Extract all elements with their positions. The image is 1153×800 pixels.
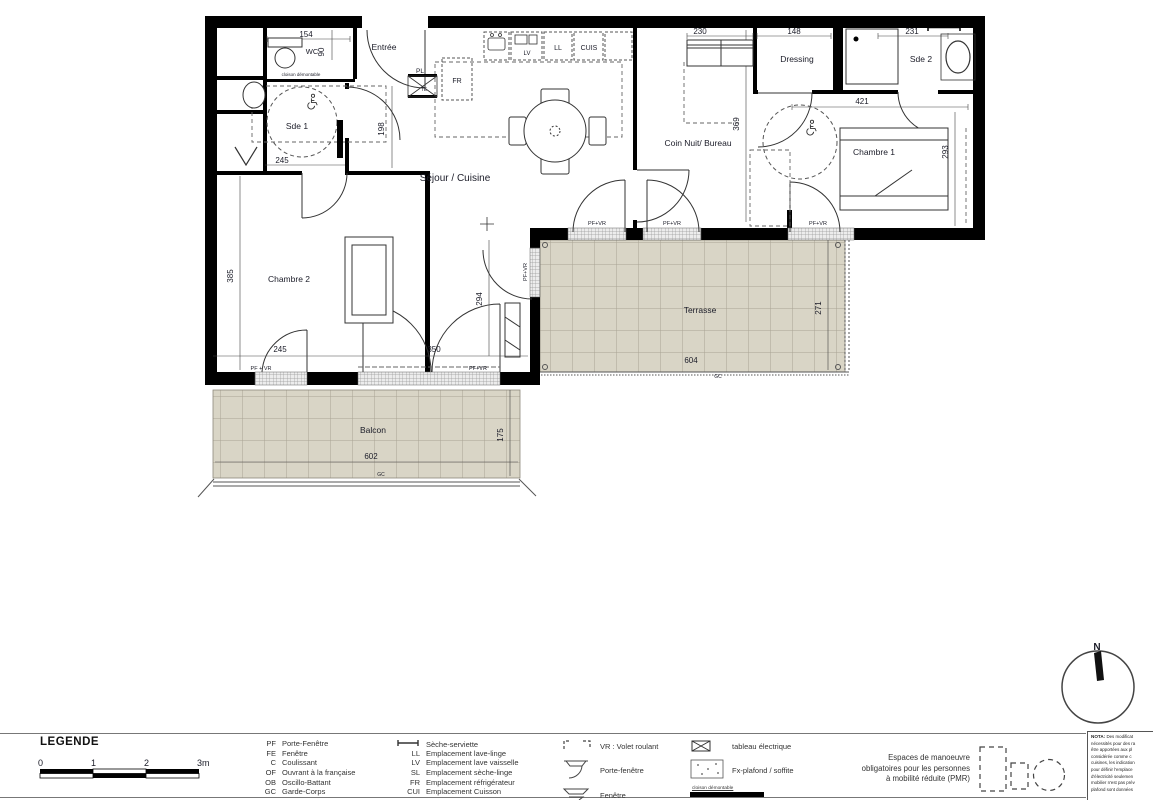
pmr-note-line: à mobilité réduite (PMR)	[832, 774, 970, 785]
dim-231: 231	[905, 27, 919, 36]
room-label-entree: Entrée	[371, 42, 396, 52]
legend-label: Fx-plafond / soffite	[732, 766, 794, 775]
nota-line: d'électricité seulemen	[1091, 774, 1153, 781]
radiator-sejour	[505, 303, 520, 357]
cloison-bar-icon	[690, 792, 764, 797]
room-label-sejour: Séjour / Cuisine	[420, 173, 491, 184]
towel-radiator-sde1	[337, 120, 343, 158]
legend-abbr: LL	[396, 749, 420, 758]
legend-label: Emplacement lave-linge	[426, 749, 506, 758]
legend-abbr: LV	[396, 758, 420, 767]
dim-271: 271	[814, 301, 823, 315]
tag-gc-balcon: GC	[377, 472, 385, 478]
nota-box: NOTA: Des modificat nécessités pour des …	[1087, 731, 1153, 800]
room-label-chambre2: Chambre 2	[268, 274, 310, 284]
dim-369: 369	[732, 117, 741, 131]
scale-tick-0: 0	[38, 758, 43, 768]
tag-cuisson: CUIS	[581, 45, 598, 52]
legend-label: Oscillo-Battant	[282, 778, 331, 787]
legend-label: Fenêtre	[600, 791, 626, 800]
wheelchair-icon	[308, 94, 317, 109]
fx-plafond-icon	[690, 759, 724, 781]
legend-symbols2-column: tableau électrique Fx-plafond / soffite …	[690, 739, 794, 797]
legend-top-rule	[0, 733, 1086, 734]
legend-abbr: CUI	[396, 787, 420, 796]
legend-title: LEGENDE	[40, 736, 99, 748]
legend-abbr: OB	[250, 778, 276, 787]
legend-label: Emplacement réfrigérateur	[426, 778, 515, 787]
compass-north-label: N	[1093, 642, 1100, 653]
washbasin	[243, 82, 265, 108]
nota-title: NOTA:	[1091, 734, 1105, 739]
tag-refrigerateur: FR	[452, 78, 461, 85]
tag-lave-linge: LL	[554, 45, 562, 52]
compass: N	[1062, 642, 1134, 723]
chambre1-bed	[840, 128, 948, 210]
cloison-demontable-symbol: cloison démontable	[690, 786, 794, 797]
down-arrow	[235, 147, 257, 165]
legend-openings-column: PFPorte-Fenêtre FEFenêtre CCoulissant OF…	[250, 739, 355, 797]
dim-245-chambre2: 245	[273, 345, 287, 354]
compass-needle	[1094, 651, 1104, 681]
legend-abbr: FE	[250, 749, 276, 758]
dining-table	[509, 89, 606, 174]
legend-label: Emplacement lave vaisselle	[426, 758, 519, 767]
room-label-balcon: Balcon	[360, 425, 386, 435]
tag-cloison-demontable: cloison démontable	[282, 72, 321, 77]
legend-label: Porte-fenêtre	[600, 766, 644, 775]
volet-roulant-icon	[562, 739, 592, 753]
legend-label: Ouvrant à la française	[282, 768, 355, 777]
dim-245-sde1: 245	[275, 156, 289, 165]
scale-tick-2: 2	[144, 758, 149, 768]
washbasin-sde2	[941, 34, 975, 80]
tag-pfvr-chambre2: PF + VR	[251, 366, 272, 372]
tag-lave-vaisselle: LV	[524, 51, 531, 57]
nota-line: plafond sont données	[1091, 787, 1153, 794]
nota-line: être apportées aux pl	[1091, 747, 1153, 754]
dim-154: 154	[299, 30, 313, 39]
scale-tick-1: 1	[91, 758, 96, 768]
pmr-note-line: obligatoires pour les personnes	[832, 764, 970, 775]
legend-label: VR : Volet roulant	[600, 742, 658, 751]
legend-label: Fenêtre	[282, 749, 308, 758]
legend-abbr: GC	[250, 787, 276, 796]
dim-421: 421	[855, 97, 869, 106]
chambre2-bed	[345, 237, 393, 323]
room-label-coin-nuit: Coin Nuit/ Bureau	[664, 138, 731, 148]
legend-label: Garde-Corps	[282, 787, 325, 796]
floor-plan-page: WC Entrée Sde 1 Séjour / Cuisine Coin Nu…	[0, 0, 1153, 800]
legend-abbr: PF	[250, 739, 276, 748]
dim-148: 148	[787, 27, 801, 36]
room-label-sde1: Sde 1	[286, 121, 308, 131]
balcon-garde-corps	[198, 479, 536, 497]
nota-line: considérée comme c	[1091, 754, 1153, 761]
nota-line: cuisines, les indication	[1091, 760, 1153, 767]
scale-bar: 0 1 2 3m	[36, 758, 216, 784]
scale-tick-3: 3m	[197, 758, 210, 768]
tag-tableau-electrique: TE	[421, 87, 428, 93]
wheelchair-icon	[807, 120, 816, 135]
tag-gc-terrasse: GC	[714, 374, 722, 380]
legend-label: Porte-Fenêtre	[282, 739, 328, 748]
room-label-sde2: Sde 2	[910, 54, 932, 64]
legend-label: Sèche-serviette	[426, 740, 478, 749]
dim-230: 230	[693, 27, 707, 36]
nota-line: nécessités pour des ra	[1091, 741, 1153, 748]
legend-symbols-column: VR : Volet roulant Porte-fenêtre Fenêtre	[562, 739, 658, 800]
legend-abbr: C	[250, 758, 276, 767]
tag-pfvr-side: PF+VR	[523, 263, 529, 281]
dim-198: 198	[377, 122, 386, 136]
dim-350: 350	[427, 345, 441, 354]
fenetre-icon	[562, 787, 592, 800]
nota-line: pour définir l'emplace	[1091, 767, 1153, 774]
porte-fenetre-icon	[562, 759, 592, 781]
front-door-opening	[362, 16, 428, 28]
floor-plan-drawing: WC Entrée Sde 1 Séjour / Cuisine Coin Nu…	[0, 0, 1153, 800]
legend-abbr: OF	[250, 768, 276, 777]
coin-nuit-bed	[687, 40, 753, 66]
dim-385: 385	[226, 269, 235, 283]
room-label-dressing: Dressing	[780, 54, 814, 64]
legend-label: Emplacement sèche-linge	[426, 768, 512, 777]
tag-pfvr-3: PF+VR	[809, 221, 827, 227]
room-label-terrasse: Terrasse	[684, 305, 717, 315]
pmr-shapes-icon	[978, 744, 1070, 794]
legend-pmr-block: Espaces de manoeuvre obligatoires pour l…	[832, 744, 1070, 794]
dim-293: 293	[941, 145, 950, 159]
dim-294: 294	[475, 292, 484, 306]
tag-pfvr-sejour: PF+VR	[469, 366, 487, 372]
legend-label: tableau électrique	[732, 742, 791, 751]
legend-bottom-rule	[0, 797, 1086, 798]
pmr-note-line: Espaces de manoeuvre	[832, 753, 970, 764]
dishwasher-icon	[515, 35, 537, 44]
tag-pfvr-2: PF+VR	[663, 221, 681, 227]
wc-toilet	[268, 38, 302, 68]
nota-line: Des modificat	[1106, 734, 1133, 739]
towel-radiator-icon	[396, 739, 420, 749]
legend-label: Coulissant	[282, 758, 317, 767]
dim-602: 602	[364, 452, 378, 461]
dim-175: 175	[496, 428, 505, 442]
dim-604: 604	[684, 356, 698, 365]
legend-label: Emplacement Cuisson	[426, 787, 501, 796]
legend-abbr: SL	[396, 768, 420, 777]
tag-placard: PL	[416, 68, 424, 75]
electrical-panel	[408, 74, 437, 98]
legend-equipment-column: Sèche-serviette LLEmplacement lave-linge…	[396, 739, 519, 797]
survey-cross	[480, 217, 494, 231]
nota-line: mobilier n'est pas prév	[1091, 780, 1153, 787]
legend-abbr: FR	[396, 778, 420, 787]
legend-label: cloison démontable	[692, 786, 794, 791]
tableau-electrique-icon	[690, 739, 724, 754]
kitchen-sink-icon	[488, 34, 505, 51]
dim-90: 90	[317, 47, 326, 56]
room-label-chambre1: Chambre 1	[853, 147, 895, 157]
shower-sde2	[846, 29, 898, 84]
tag-pfvr-1: PF+VR	[588, 221, 606, 227]
